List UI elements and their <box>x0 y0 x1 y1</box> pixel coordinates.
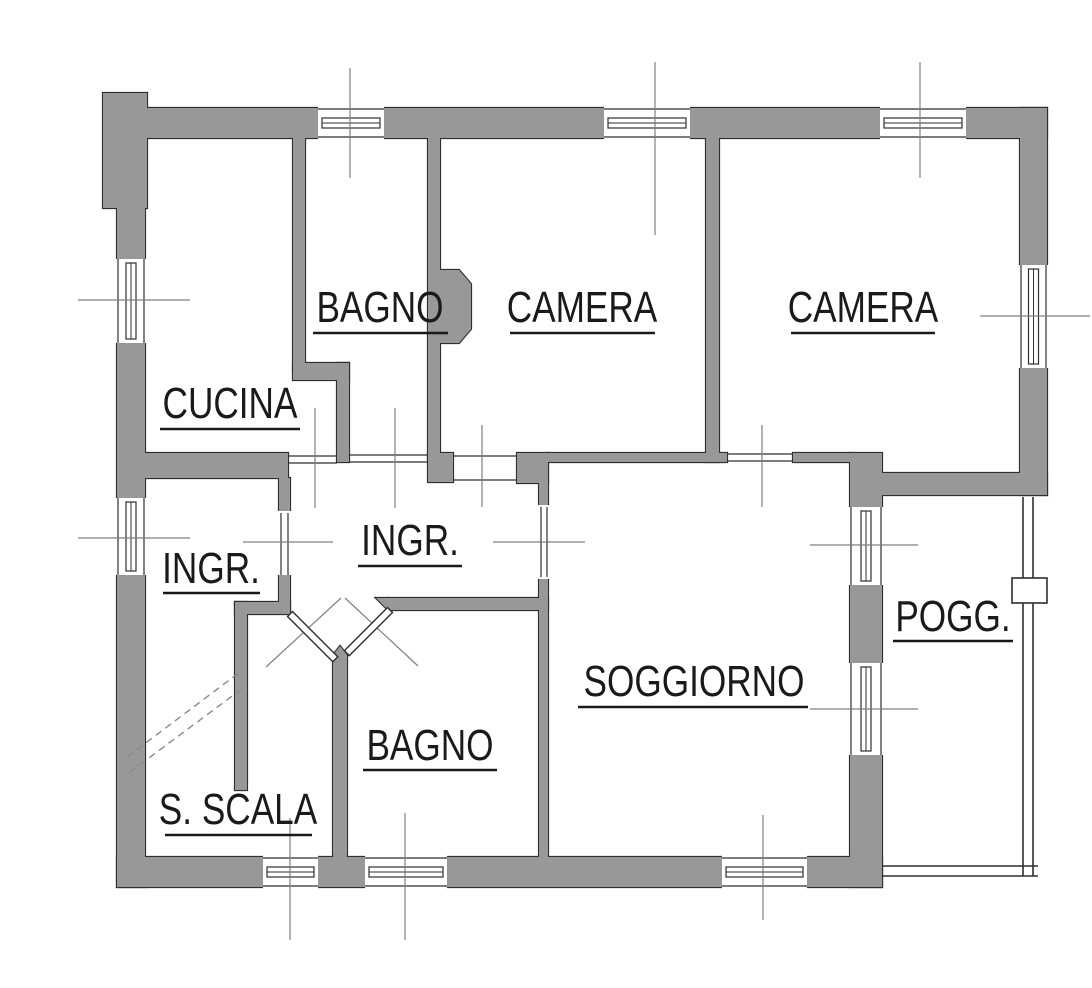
window-icon <box>318 106 384 140</box>
railing-post <box>1012 578 1047 603</box>
room-label-bagno-bottom: BAGNO <box>366 721 493 770</box>
room-label-camera-2: CAMERA <box>788 283 939 332</box>
floor-plan-canvas: BAGNOCAMERACAMERACUCINAINGR.INGR.POGG.SO… <box>0 0 1092 988</box>
door-leaf-icon <box>344 608 392 656</box>
room-label-ingr-vestibolo: INGR. <box>162 544 260 593</box>
window-icon <box>604 106 690 140</box>
room-label-camera-1: CAMERA <box>507 283 658 332</box>
window-icon <box>722 855 807 889</box>
windows <box>115 106 1049 889</box>
window-icon <box>880 106 966 140</box>
window-icon <box>365 855 447 889</box>
floor-plan-svg: BAGNOCAMERACAMERACUCINAINGR.INGR.POGG.SO… <box>0 0 1092 988</box>
room-label-cucina: CUCINA <box>163 379 298 428</box>
room-label-bagno-top: BAGNO <box>316 283 443 332</box>
room-label-soggiorno: SOGGIORNO <box>584 657 805 706</box>
room-label-pogg: POGG. <box>895 592 1010 641</box>
room-label-ingr-hall: INGR. <box>361 516 459 565</box>
wall-fills <box>103 93 1047 887</box>
room-label-s-scala: S. SCALA <box>159 785 318 834</box>
window-icon <box>115 498 147 575</box>
balcony-railing <box>882 497 1047 876</box>
window-icon <box>115 259 147 343</box>
door-leaf-icon <box>288 612 338 662</box>
window-icon <box>848 507 884 585</box>
